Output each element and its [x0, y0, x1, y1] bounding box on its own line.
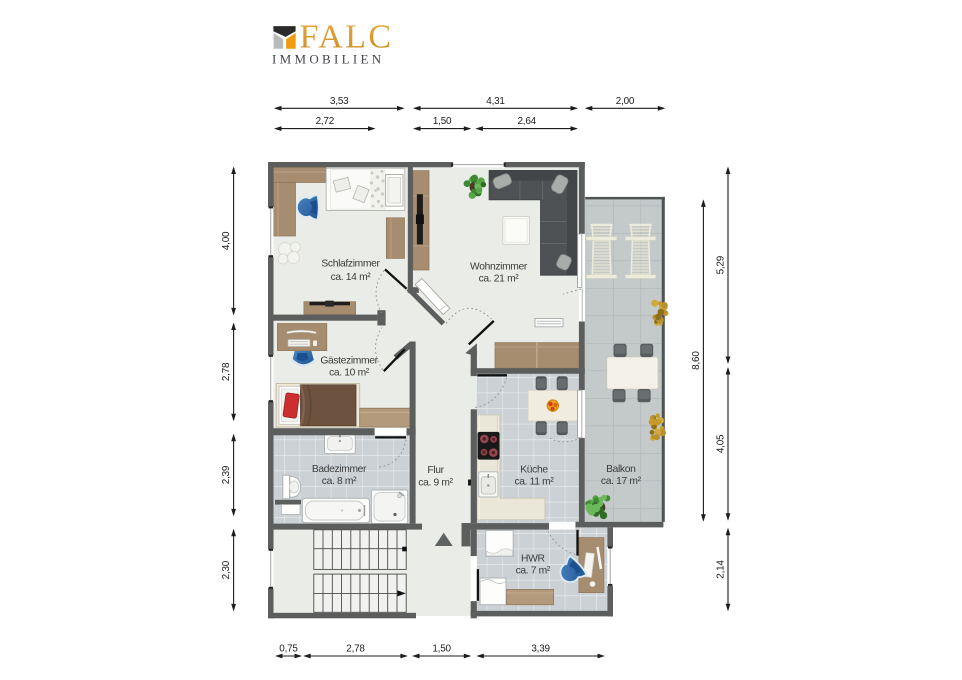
svg-text:IMMOBILIEN: IMMOBILIEN	[272, 52, 384, 67]
svg-text:ca. 10 m²: ca. 10 m²	[329, 368, 370, 379]
svg-text:8,60: 8,60	[691, 351, 702, 370]
svg-text:1,50: 1,50	[433, 116, 452, 127]
svg-text:Gästezimmer: Gästezimmer	[320, 356, 378, 367]
svg-text:2,78: 2,78	[346, 644, 365, 655]
svg-text:ca. 14 m²: ca. 14 m²	[331, 272, 372, 283]
svg-text:2,72: 2,72	[316, 116, 334, 127]
svg-text:Wohnzimmer: Wohnzimmer	[470, 262, 528, 273]
svg-text:2,14: 2,14	[716, 560, 727, 579]
svg-text:ca. 11 m²: ca. 11 m²	[514, 476, 554, 487]
svg-text:Küche: Küche	[520, 465, 548, 476]
svg-text:HWR: HWR	[521, 554, 545, 565]
svg-text:ca. 8 m²: ca. 8 m²	[322, 476, 357, 487]
svg-text:Badezimmer: Badezimmer	[312, 464, 367, 475]
svg-text:0,75: 0,75	[279, 644, 298, 655]
svg-text:4,31: 4,31	[486, 96, 505, 107]
svg-text:Flur: Flur	[427, 465, 444, 476]
svg-text:4,05: 4,05	[716, 434, 727, 453]
svg-text:2,00: 2,00	[616, 96, 635, 107]
svg-text:3,53: 3,53	[330, 96, 349, 107]
svg-text:2,64: 2,64	[517, 116, 536, 127]
svg-text:ca. 21 m²: ca. 21 m²	[479, 273, 520, 284]
svg-text:ca. 7 m²: ca. 7 m²	[516, 566, 551, 577]
svg-text:Balkon: Balkon	[606, 464, 636, 475]
svg-text:2,39: 2,39	[221, 465, 232, 484]
svg-text:Schlafzimmer: Schlafzimmer	[321, 259, 380, 270]
svg-text:ca. 9 m²: ca. 9 m²	[418, 477, 453, 488]
svg-text:FALC: FALC	[300, 19, 394, 56]
svg-text:3,39: 3,39	[531, 644, 550, 655]
svg-text:2,30: 2,30	[221, 560, 232, 579]
svg-text:1,50: 1,50	[432, 644, 451, 655]
svg-text:ca. 17 m²: ca. 17 m²	[601, 476, 642, 487]
svg-text:4,00: 4,00	[221, 231, 232, 250]
svg-text:2,78: 2,78	[221, 362, 232, 381]
svg-text:5,29: 5,29	[716, 255, 727, 274]
